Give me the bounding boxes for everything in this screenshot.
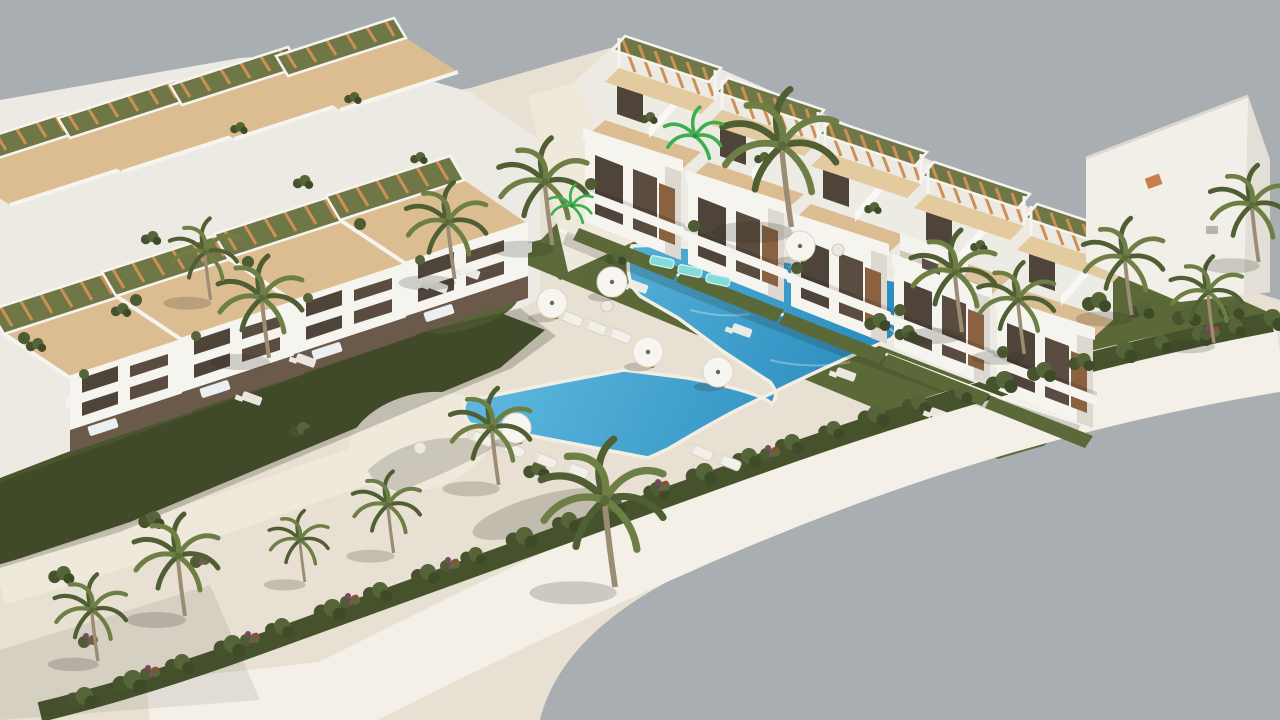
gable-vent: [1206, 226, 1218, 234]
rendering-viewport: [0, 0, 1280, 720]
architectural-rendering: [0, 0, 1280, 720]
